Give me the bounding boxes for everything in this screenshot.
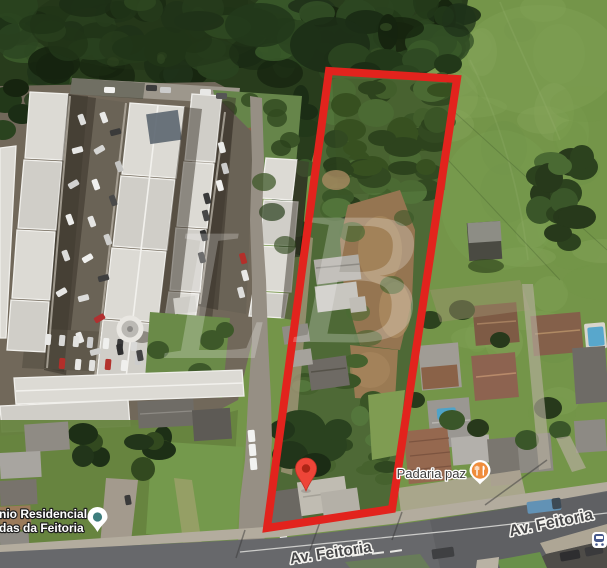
svg-text:das da Feitoria: das da Feitoria (0, 521, 84, 535)
svg-text:B: B (291, 174, 419, 384)
svg-text:L: L (163, 190, 272, 400)
svg-text:nio Residencial: nio Residencial (0, 507, 87, 521)
svg-text:Padaria paz: Padaria paz (397, 466, 466, 481)
